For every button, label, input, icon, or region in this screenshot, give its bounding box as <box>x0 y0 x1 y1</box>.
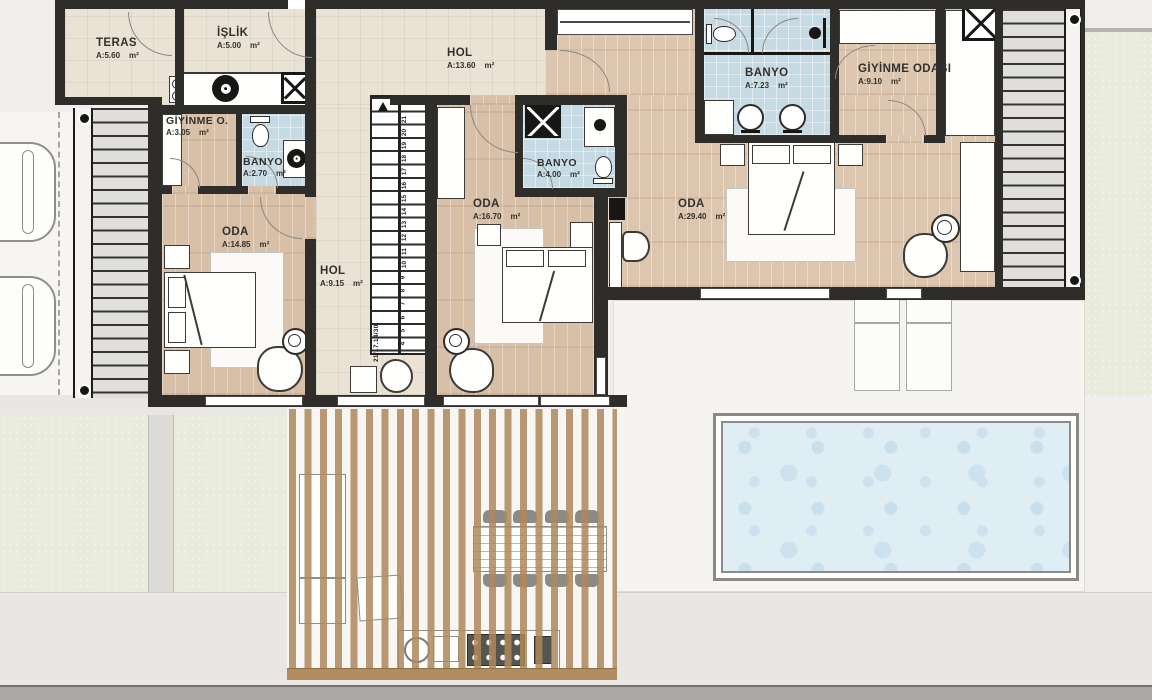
wall <box>615 95 627 195</box>
door-gap <box>305 197 316 239</box>
stair-number: 14 <box>401 208 408 215</box>
washing-machine-icon <box>287 149 306 168</box>
nightstand <box>477 224 501 246</box>
room-label: BANYO <box>243 157 283 168</box>
pillow <box>168 312 186 343</box>
room-area: A:29.40m² <box>678 213 725 221</box>
oda-orta-closet <box>437 107 465 199</box>
stair-number: 8 <box>399 289 406 293</box>
stair-number: 9 <box>399 276 406 280</box>
shaft-x-dark-icon <box>525 105 561 138</box>
wall <box>236 114 242 188</box>
road-strip <box>0 687 1152 700</box>
left-balcony-deck <box>93 108 148 398</box>
sink-icon <box>737 104 764 131</box>
wall <box>175 0 184 105</box>
stair-number: 7 <box>399 302 406 306</box>
desk-chair <box>622 231 650 262</box>
room-label: HOL <box>320 266 345 278</box>
toilet-tank <box>250 116 270 123</box>
room-label: ODA <box>678 199 705 211</box>
window-mullion <box>560 21 690 23</box>
stair-number: 12 <box>401 234 408 241</box>
prep-board <box>433 636 459 662</box>
side-burner-icon <box>534 636 552 664</box>
wall <box>55 97 162 105</box>
room-area: A:9.10m² <box>858 78 901 86</box>
banyo-ust-partition <box>751 9 754 53</box>
dining-chair <box>575 510 599 523</box>
room-area: A:5.60m² <box>96 52 139 60</box>
grass-bottom-left <box>0 415 287 592</box>
garden-path <box>148 415 174 592</box>
sun-lounger <box>906 299 952 391</box>
faucet-icon <box>741 130 760 133</box>
stair-number: 20 <box>401 129 408 136</box>
stair-number: 19 <box>401 142 408 149</box>
dining-chair <box>545 574 569 587</box>
stair-number: 18 <box>401 155 408 162</box>
room-label: TERAS <box>96 38 137 50</box>
dining-chair <box>483 574 507 587</box>
door-gap <box>886 135 924 143</box>
rail-post <box>78 384 91 397</box>
room-label: BANYO <box>537 158 577 169</box>
hall-table <box>350 366 377 393</box>
wall <box>515 188 627 197</box>
pillow <box>752 145 790 164</box>
room-area: A:14.85m² <box>222 241 269 249</box>
stair-number: 15 <box>401 195 408 202</box>
toilet-tank <box>706 24 712 44</box>
room-area: A:4.00m² <box>537 171 580 179</box>
room-label: BANYO <box>745 68 789 80</box>
stair-number: 6 <box>399 315 406 319</box>
dining-chair <box>483 510 507 523</box>
desk <box>609 222 622 290</box>
rail-post <box>78 112 91 125</box>
stair-number: 21 <box>401 115 408 122</box>
dining-chair <box>545 510 569 523</box>
wall <box>55 0 65 105</box>
grill-icon <box>467 634 525 666</box>
pergola-deck <box>287 409 617 671</box>
room-label: GİYİNME O. <box>166 116 228 127</box>
sun-lounger <box>854 299 900 391</box>
wall <box>148 105 316 114</box>
pillow <box>793 145 831 164</box>
wall <box>425 95 437 407</box>
parking-dashed-line <box>58 112 60 395</box>
outdoor-sofa-seat <box>299 578 346 624</box>
stair-dimension-label: 21/17.14/30 <box>373 267 380 362</box>
pool-water <box>721 421 1071 573</box>
room-area: A:2.70m² <box>243 170 286 178</box>
outdoor-lounge-chair <box>357 575 404 622</box>
toilet-icon <box>595 156 612 178</box>
toilet-tank <box>593 178 613 184</box>
left-balcony-rail <box>73 108 93 398</box>
floor-plan: 456789101112131415161718192021 21/17.14/… <box>0 0 1152 700</box>
right-balcony-deck <box>1002 9 1064 287</box>
room-label: HOL <box>447 48 472 60</box>
room-area: A:3.05m² <box>166 129 209 137</box>
rail-post <box>1068 274 1081 287</box>
window <box>205 396 303 406</box>
room-area: A:5.00m² <box>217 42 260 50</box>
shower-head-icon <box>809 27 821 39</box>
faucet-icon <box>783 130 802 133</box>
grass-right-border <box>1085 28 1152 32</box>
room-label: GİYİNME ODASI <box>858 64 951 76</box>
nightstand <box>164 245 190 269</box>
shower-head-icon <box>594 119 606 131</box>
dining-chair <box>513 510 537 523</box>
side-table-inner <box>288 334 301 347</box>
window <box>337 396 425 406</box>
room-label: İŞLİK <box>217 28 248 40</box>
outdoor-sofa <box>299 474 346 578</box>
stair-number: 17 <box>401 168 408 175</box>
window <box>443 396 539 406</box>
sink-icon <box>779 104 806 131</box>
right-balcony-outer-line <box>1081 9 1085 287</box>
stair-number: 5 <box>399 329 406 333</box>
pergola-edge-beam <box>287 668 617 680</box>
shower-bracket <box>823 18 826 48</box>
wall <box>995 0 1003 287</box>
room-area: A:9.15m² <box>320 280 363 288</box>
rail-post <box>1068 13 1081 26</box>
oda-sag-closet <box>960 142 995 272</box>
stair-number: 4 <box>399 342 406 346</box>
washing-machine-icon <box>212 75 239 102</box>
grass-right <box>1085 28 1152 396</box>
stair-number: 13 <box>401 221 408 228</box>
stair-number: 10 <box>401 261 408 268</box>
wall <box>55 0 1085 9</box>
room-area: A:13.60m² <box>447 62 494 70</box>
room-label: ODA <box>222 227 249 239</box>
hall-chair <box>380 359 413 393</box>
wall-panel <box>609 198 625 220</box>
room-area: A:16.70m² <box>473 213 520 221</box>
wall <box>695 0 704 140</box>
dining-chair <box>513 574 537 587</box>
door-gap <box>545 50 557 95</box>
room-area: A:7.23m² <box>745 82 788 90</box>
window <box>700 288 830 299</box>
shaft-x-icon <box>281 72 308 104</box>
vanity-counter <box>704 100 734 135</box>
wall <box>148 105 162 407</box>
car-windshield <box>22 150 34 234</box>
window <box>886 288 922 299</box>
room-hol-ust <box>316 9 545 105</box>
side-table-inner <box>449 334 462 347</box>
door-gap <box>470 95 518 105</box>
staircase: 456789101112131415161718192021 21/17.14/… <box>370 95 427 355</box>
dining-chair <box>575 574 599 587</box>
wall <box>608 287 1085 300</box>
car-windshield <box>22 284 34 368</box>
room-label: ODA <box>473 199 500 211</box>
nightstand <box>720 144 745 166</box>
toilet-icon <box>252 124 269 147</box>
nightstand <box>164 350 190 374</box>
nightstand <box>838 144 863 166</box>
balcony-door <box>596 357 606 395</box>
stair-number: 16 <box>401 181 408 188</box>
dining-table <box>473 526 607 572</box>
right-balcony-rail <box>1064 9 1082 287</box>
outdoor-sink-icon <box>404 637 430 663</box>
pillow <box>168 277 186 308</box>
sliding-door <box>540 396 610 406</box>
pillow <box>548 250 586 267</box>
pillow <box>506 250 544 267</box>
side-table-inner <box>937 220 952 235</box>
stair-number: 11 <box>401 248 408 255</box>
pool <box>713 413 1079 581</box>
giyinme-odasi-closet <box>839 10 936 44</box>
